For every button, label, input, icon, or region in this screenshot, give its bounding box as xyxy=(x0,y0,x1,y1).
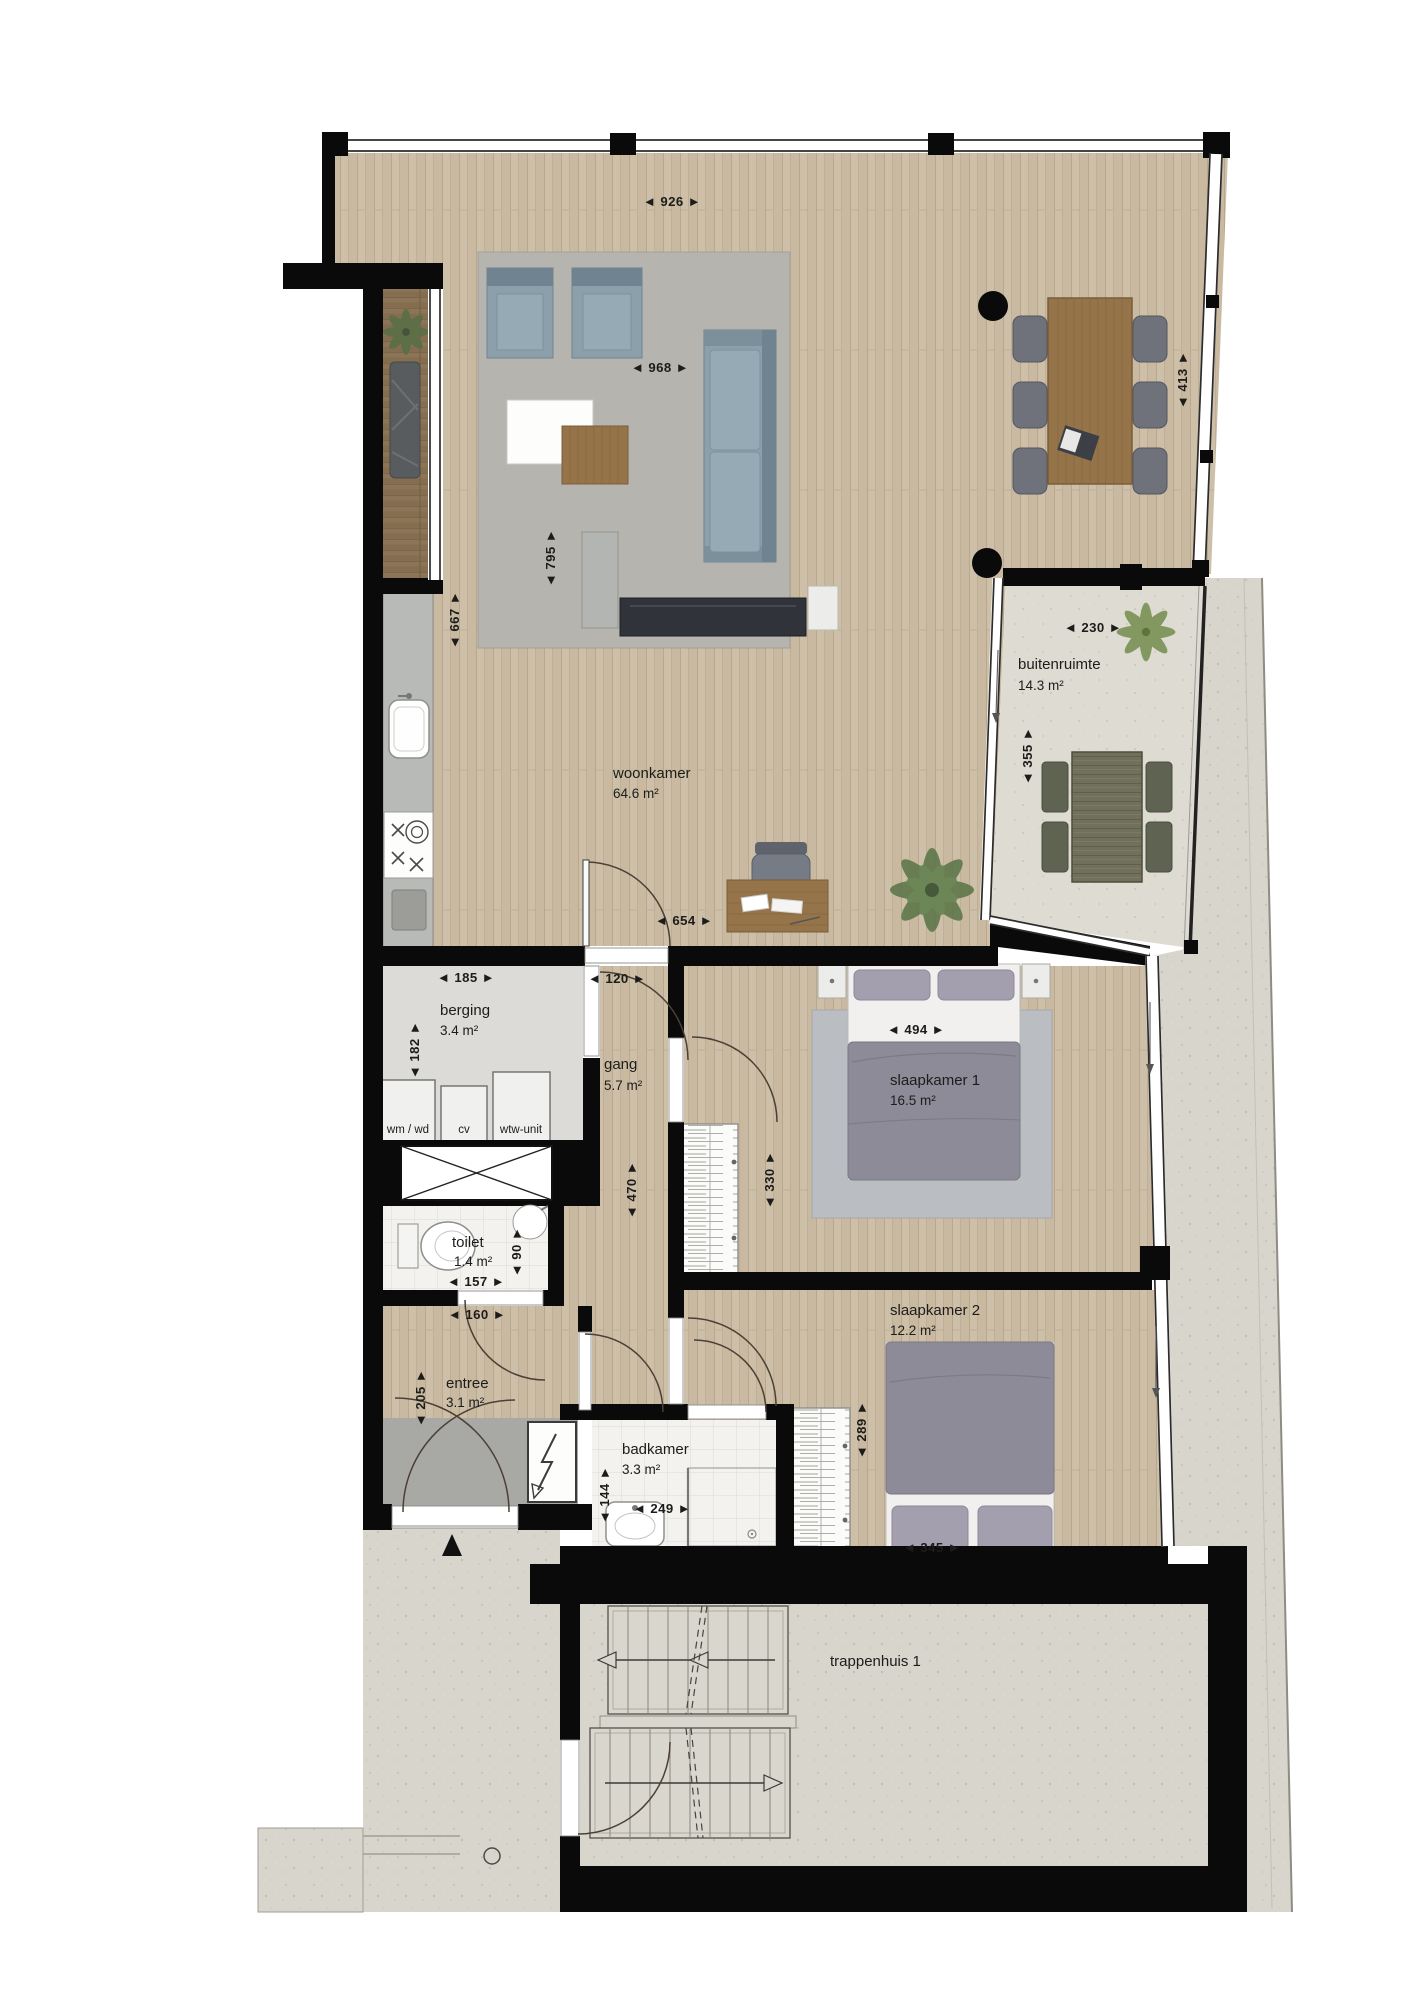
room-area-gang: 5.7 m² xyxy=(604,1078,643,1093)
dim-968: ◄ 968 ► xyxy=(631,360,689,375)
appliance-label-wm-wd: wm / wd xyxy=(386,1124,429,1136)
room-label-slaapkamer2: slaapkamer 2 xyxy=(890,1302,980,1319)
outdoor-chair xyxy=(1042,762,1068,812)
room-area-toilet: 1.4 m² xyxy=(454,1254,493,1269)
room-label-toilet: toilet xyxy=(452,1234,485,1251)
bedroom1-set xyxy=(812,964,1052,1218)
dim-926: ◄ 926 ► xyxy=(643,194,701,209)
room-label-berging: berging xyxy=(440,1002,490,1019)
appliance-label-cv: cv xyxy=(458,1124,470,1136)
floor-entry-step xyxy=(258,1828,363,1912)
bed xyxy=(886,1342,1054,1558)
outdoor-chair xyxy=(1146,762,1172,812)
room-area-slaapkamer2: 12.2 m² xyxy=(890,1323,936,1338)
meter-cabinet xyxy=(528,1422,576,1502)
room-label-badkamer: badkamer xyxy=(622,1441,689,1458)
wardrobe xyxy=(792,1408,850,1560)
dim-413: ◄ 413 ► xyxy=(1175,351,1190,409)
room-area-berging: 3.4 m² xyxy=(440,1023,479,1038)
dim-494: ◄ 494 ► xyxy=(887,1022,945,1037)
dim-289: ◄ 289 ► xyxy=(854,1401,869,1459)
dim-330: ◄ 330 ► xyxy=(762,1151,777,1209)
room-label-entree: entree xyxy=(446,1375,489,1392)
stove xyxy=(384,812,433,878)
dim-249: ◄ 249 ► xyxy=(633,1501,691,1516)
plant xyxy=(1117,603,1176,662)
room-label-slaapkamer1: slaapkamer 1 xyxy=(890,1072,980,1089)
plant xyxy=(890,848,974,932)
staircase xyxy=(590,1606,796,1838)
room-area-buitenruimte: 14.3 m² xyxy=(1018,678,1064,693)
plant xyxy=(383,309,429,355)
floor-plan-svg: woonkamer 64.6 m² buitenruimte 14.3 m² b… xyxy=(0,0,1415,2000)
sofa xyxy=(704,330,776,562)
dim-182: ◄ 182 ► xyxy=(407,1021,422,1079)
room-label-buitenruimte: buitenruimte xyxy=(1018,656,1101,673)
dim-345: ◄ 345 ► xyxy=(903,1540,961,1555)
dim-205: ◄ 205 ► xyxy=(413,1369,428,1427)
dim-795: ◄ 795 ► xyxy=(543,529,558,587)
dim-160: ◄ 160 ► xyxy=(448,1307,506,1322)
living-room-set xyxy=(478,252,838,648)
wardrobe xyxy=(683,1124,738,1280)
dining-set xyxy=(1013,298,1167,494)
room-label-trappenhuis: trappenhuis 1 xyxy=(830,1653,921,1670)
lounge-chair xyxy=(390,362,420,478)
dim-230: ◄ 230 ► xyxy=(1064,620,1122,635)
bedroom2-set xyxy=(886,1342,1054,1558)
cutting-board xyxy=(392,890,426,930)
dim-667: ◄ 667 ► xyxy=(447,591,462,649)
dim-654: ◄ 654 ► xyxy=(655,913,713,928)
outdoor-chair xyxy=(1146,822,1172,872)
outdoor-table xyxy=(1072,752,1142,882)
room-area-entree: 3.1 m² xyxy=(446,1395,485,1410)
room-area-woonkamer: 64.6 m² xyxy=(613,786,659,801)
armchair xyxy=(572,268,642,358)
cistern xyxy=(398,1224,418,1268)
room-area-badkamer: 3.3 m² xyxy=(622,1462,661,1477)
desk xyxy=(727,880,828,932)
kitchen xyxy=(383,592,433,948)
dim-157: ◄ 157 ► xyxy=(447,1274,505,1289)
armchair xyxy=(487,268,553,358)
outdoor-chair xyxy=(1042,822,1068,872)
room-label-woonkamer: woonkamer xyxy=(612,765,691,782)
side-table xyxy=(562,426,628,484)
column xyxy=(972,548,1002,578)
column xyxy=(978,291,1008,321)
room-area-slaapkamer1: 16.5 m² xyxy=(890,1093,936,1108)
dim-120: ◄ 120 ► xyxy=(588,971,646,986)
shaft xyxy=(363,1140,600,1206)
room-label-gang: gang xyxy=(604,1056,637,1073)
dim-185: ◄ 185 ► xyxy=(437,970,495,985)
dim-355: ◄ 355 ► xyxy=(1020,727,1035,785)
dim-90: ◄ 90 ► xyxy=(509,1227,524,1278)
dim-470: ◄ 470 ► xyxy=(624,1161,639,1219)
appliance-label-wtw: wtw-unit xyxy=(499,1124,543,1136)
kitchen-sink xyxy=(389,693,429,758)
office-chair-back xyxy=(755,842,807,855)
dim-144: ◄ 144 ► xyxy=(597,1466,612,1524)
